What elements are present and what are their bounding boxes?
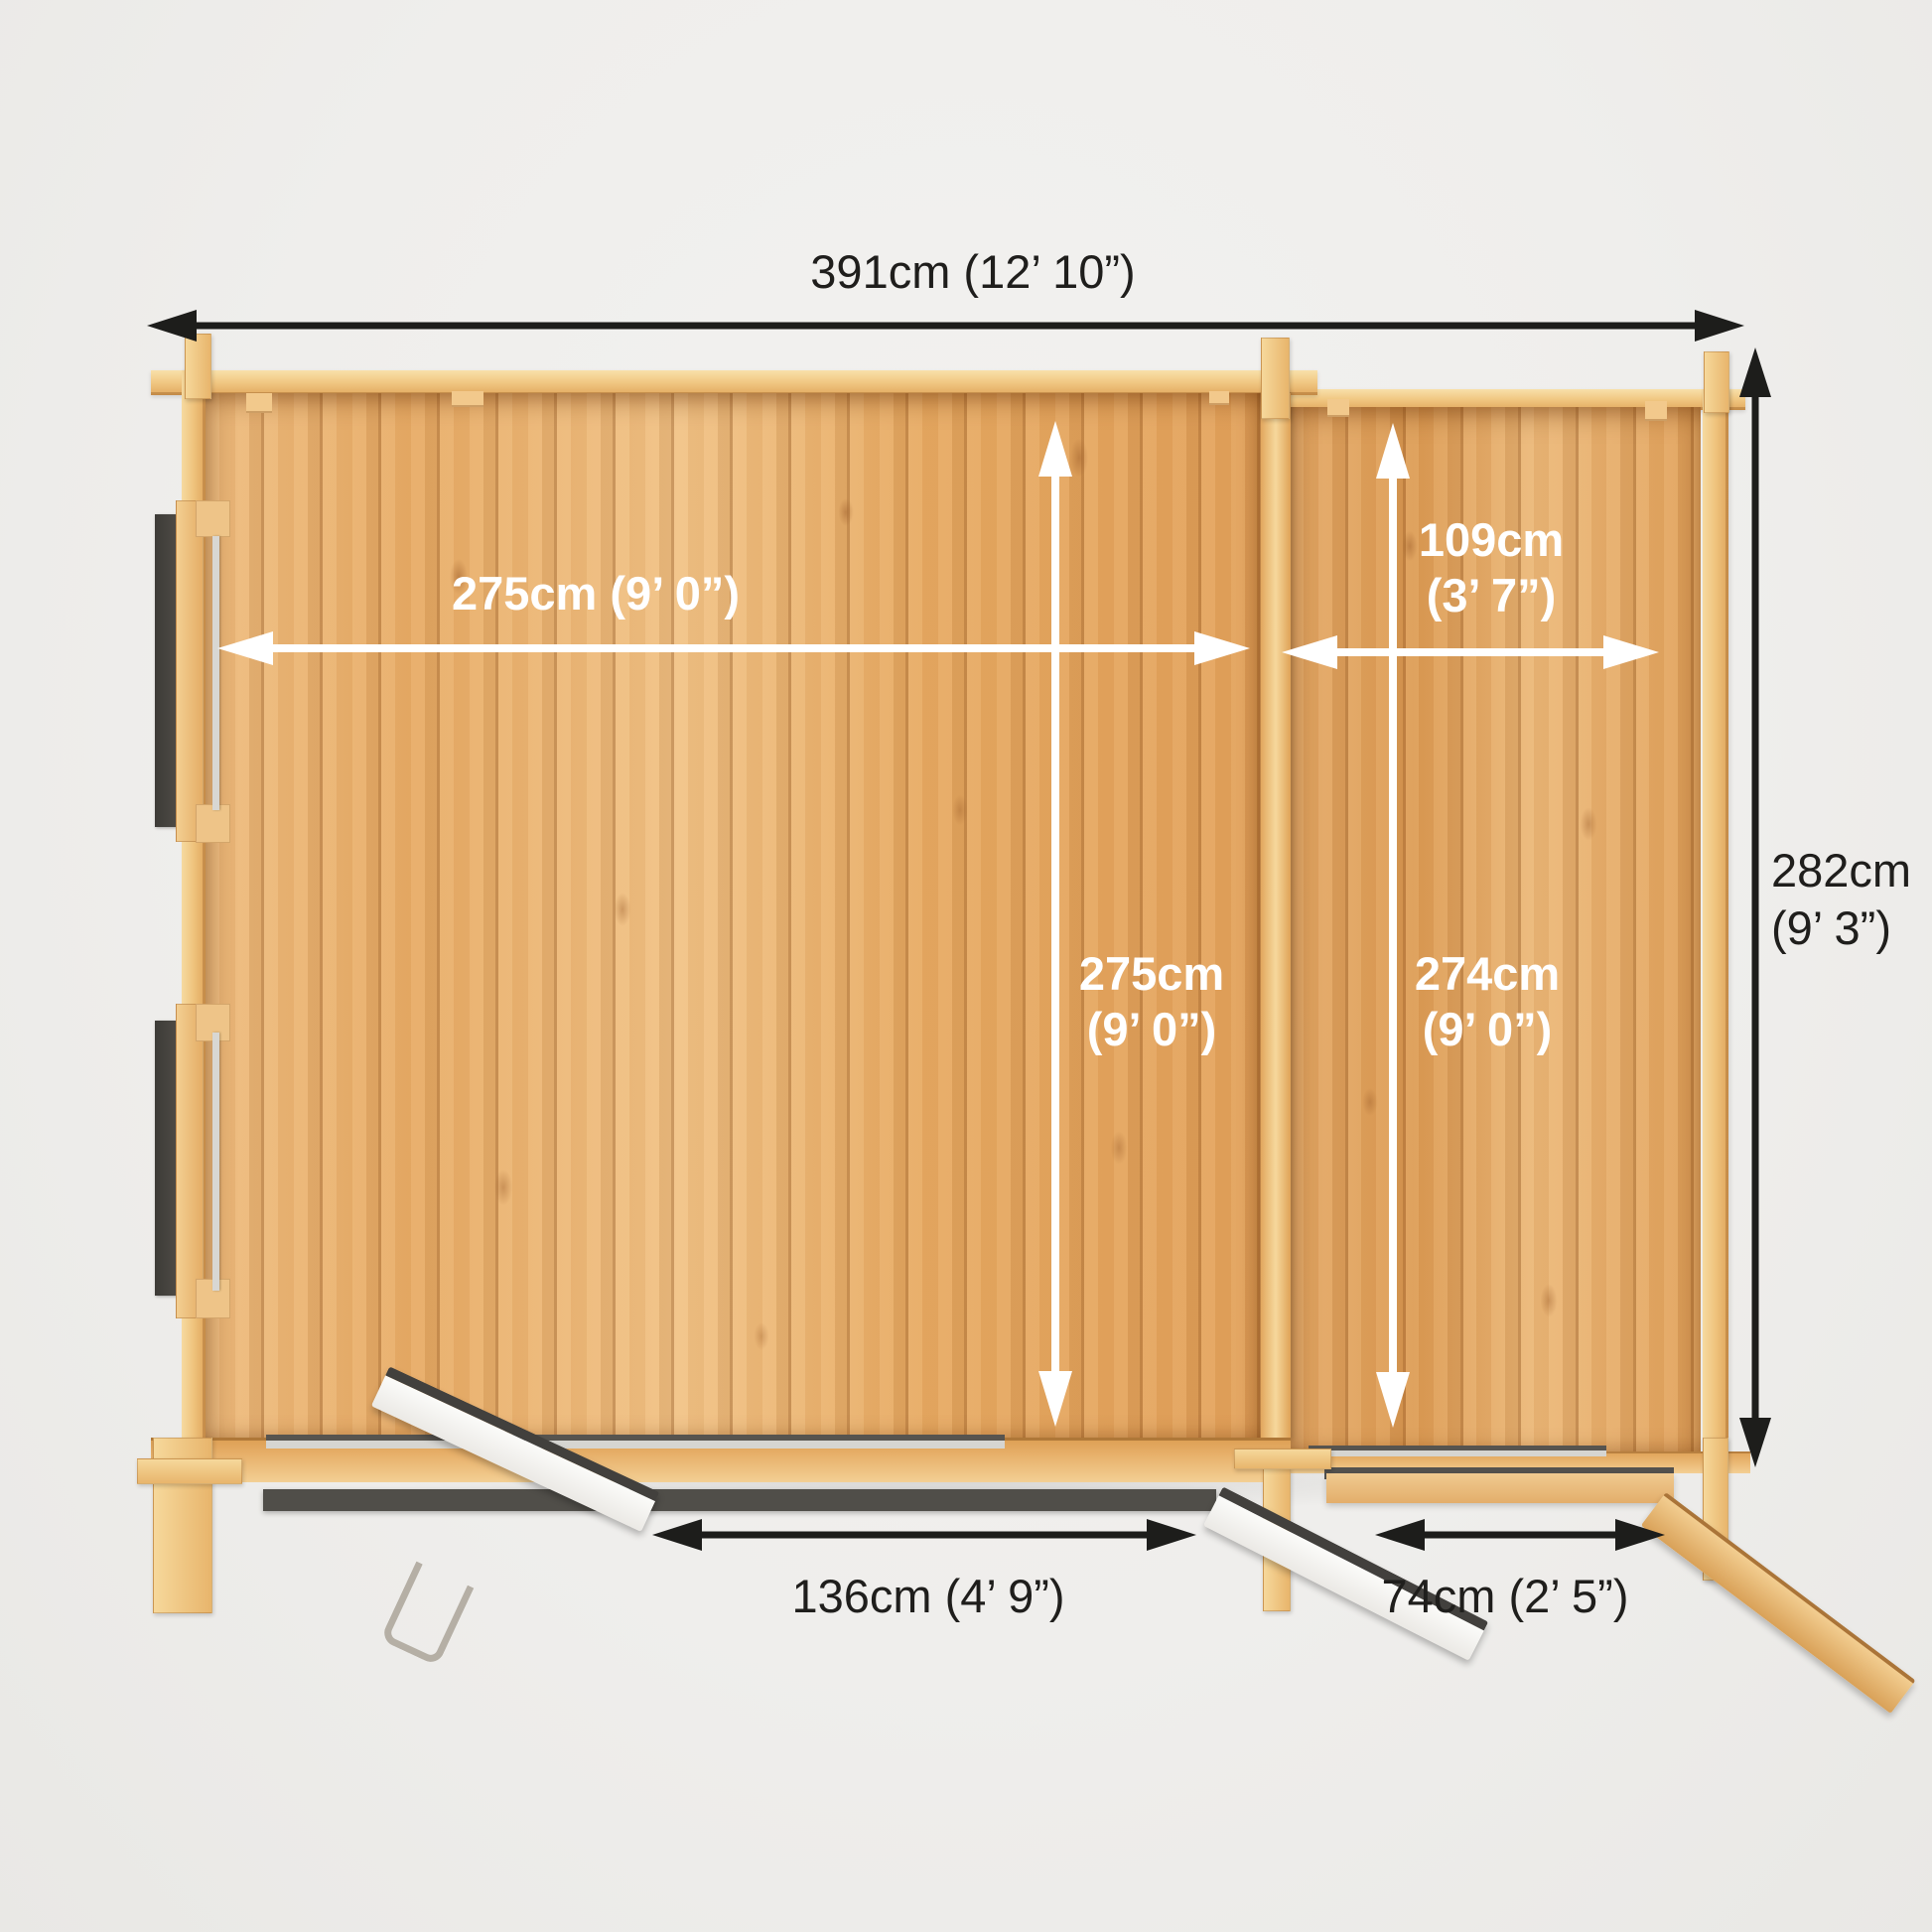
corner-log-bottom-left-beam [137,1458,242,1484]
annexe-depth-label: 274cm (9’ 0”) [1415,946,1560,1057]
joist-tab [1327,399,1349,417]
annexe-front-glazing [1309,1450,1606,1456]
annexe-depth-line1: 274cm [1415,946,1560,1002]
window-1-frame [176,500,204,842]
partition-wall [1261,393,1291,1440]
floor-plan-diagram: 391cm (12’ 10”) 282cm (9’ 3”) 275cm (9’ … [0,0,1932,1932]
main-room-width-label: 275cm (9’ 0”) [452,566,740,621]
overall-depth-line1: 282cm [1771,842,1911,899]
joist-tab [246,393,272,413]
window-2-inner-glazing [212,1033,219,1291]
annexe-width-label: 109cm (3’ 7”) [1419,512,1564,623]
annexe-door-opening-label: 74cm (2’ 5”) [1382,1569,1629,1623]
corner-log-partition-top [1261,338,1290,419]
annexe-right-wall [1703,389,1728,1469]
window-1-inner-glazing [212,536,219,810]
main-threshold-shadow [263,1489,1216,1511]
main-room-depth-label: 275cm (9’ 0”) [1079,946,1224,1057]
annexe-depth-line2: (9’ 0”) [1415,1002,1560,1057]
window-1-frame-end [196,500,230,537]
joist-tab [1645,401,1667,421]
overall-depth-label: 282cm (9’ 3”) [1771,842,1911,957]
window-2-frame [176,1004,204,1318]
main-door-opening-label: 136cm (4’ 9”) [791,1569,1064,1623]
door-handle [380,1562,475,1667]
corner-log-top-right [1704,351,1729,413]
overall-width-label: 391cm (12’ 10”) [810,244,1135,299]
annexe-door-sill [1326,1473,1674,1503]
main-rear-wall [151,370,1317,395]
overall-depth-line2: (9’ 3”) [1771,899,1911,957]
overall-depth-arrow [1739,347,1771,1467]
corner-log-partition-bottom-beam [1234,1449,1331,1469]
corner-log-top-left [185,334,211,399]
main-room-depth-line1: 275cm [1079,946,1224,1002]
overall-width-arrow [147,310,1744,342]
annexe-width-line2: (3’ 7”) [1419,568,1564,623]
joist-tab [452,391,483,407]
main-room-floor [206,393,1261,1440]
main-room-depth-line2: (9’ 0”) [1079,1002,1224,1057]
annexe-width-line1: 109cm [1419,512,1564,568]
joist-tab [1209,391,1229,405]
annexe-door-leaf-open [1641,1492,1916,1714]
main-front-glazing [266,1441,1005,1449]
